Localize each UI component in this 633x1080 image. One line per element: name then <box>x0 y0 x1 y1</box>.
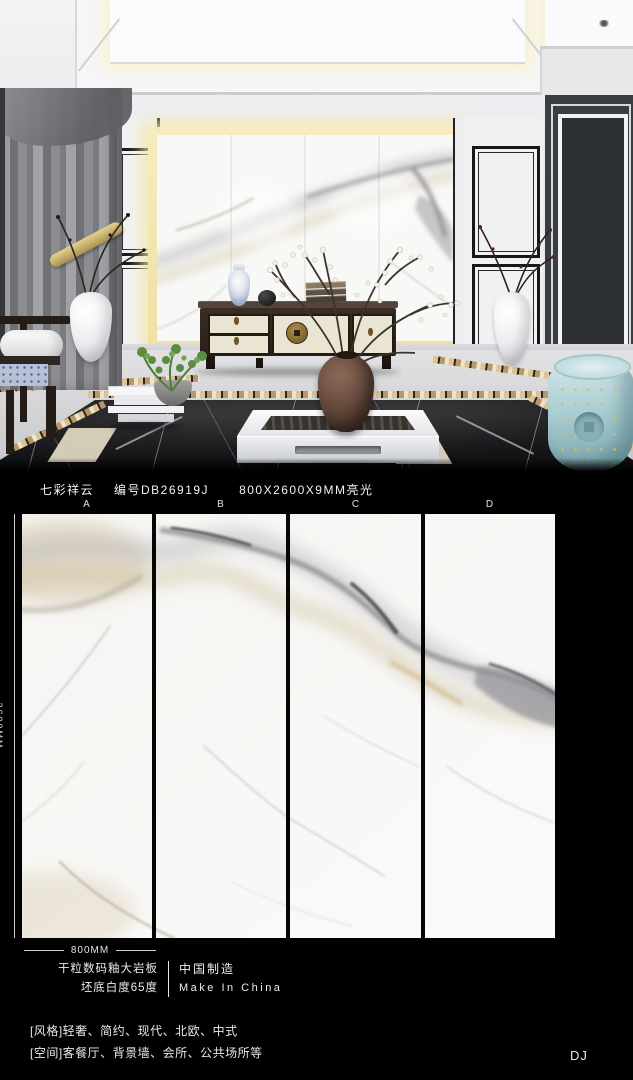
stool-coin-motif <box>574 412 604 442</box>
pedestal-shadow <box>110 423 182 430</box>
photo-bottom-fade <box>0 458 633 473</box>
pedestal-lower-shelf <box>108 406 184 413</box>
product-header: 七彩祥云 编号DB26919J 800X2600X9MM亮光 <box>40 481 373 498</box>
product-name: 七彩祥云 <box>40 481 94 498</box>
door-white-frame <box>558 114 628 376</box>
material-label: 干粒数码釉大岩板 <box>18 960 158 979</box>
style-note: [风格]轻奢、简约、现代、北欧、中式 <box>30 1022 238 1039</box>
origin-en-label: Make In China <box>179 979 282 998</box>
tile-product-poster: 七彩祥云 编号DB26919J 800X2600X9MM亮光 A B C D <box>0 0 633 1080</box>
stool-top <box>554 354 631 380</box>
panel-label-b: B <box>156 499 286 510</box>
product-info-right: 中国制造 Make In China <box>179 960 282 998</box>
daybed-leg <box>6 390 14 454</box>
panel-label-c: C <box>291 499 421 510</box>
vase-mouth <box>336 351 358 359</box>
width-dimension: 800MM <box>24 944 156 956</box>
panel-gap <box>152 514 156 938</box>
height-dimension-line: 2600MM <box>14 514 15 938</box>
panel-label-a: A <box>22 499 152 510</box>
space-note: [空间]客餐厅、背景墙、会所、公共场所等 <box>30 1044 263 1061</box>
left-branch-arrangement <box>40 205 150 305</box>
room-render <box>0 0 633 473</box>
daybed-rail <box>0 316 70 324</box>
panel-gap <box>286 514 290 938</box>
height-dimension-label: 2600MM <box>0 697 10 754</box>
green-plant <box>132 344 212 392</box>
spotlight-icon <box>596 20 612 27</box>
dimension-line <box>116 950 156 951</box>
ceiling-right-recess <box>545 0 633 46</box>
width-dimension-label: 800MM <box>71 945 109 956</box>
ceiling-recess-covelight <box>110 0 525 64</box>
whiteness-label: 坯底白度65度 <box>18 979 158 998</box>
product-code: 编号DB26919J <box>114 481 209 498</box>
patterned-cushion <box>0 364 48 386</box>
slab-panel-strip <box>22 514 555 938</box>
product-info-block: 干粒数码釉大岩板 坯底白度65度 中国制造 Make In China <box>18 960 282 998</box>
watermark: DJ <box>570 1048 588 1063</box>
pedestal-base <box>118 414 174 422</box>
product-spec: 800X2600X9MM亮光 <box>239 481 373 498</box>
tray-handle-slot <box>295 446 381 454</box>
info-divider <box>168 961 169 997</box>
dimension-line <box>24 950 64 951</box>
ceramic-drum-stool <box>548 354 633 472</box>
panel-label-d: D <box>425 499 555 510</box>
origin-cn-label: 中国制造 <box>179 960 282 979</box>
product-info-left: 干粒数码釉大岩板 坯底白度65度 <box>18 960 158 998</box>
daybed-leg <box>46 386 56 438</box>
panel-gap <box>421 514 425 938</box>
